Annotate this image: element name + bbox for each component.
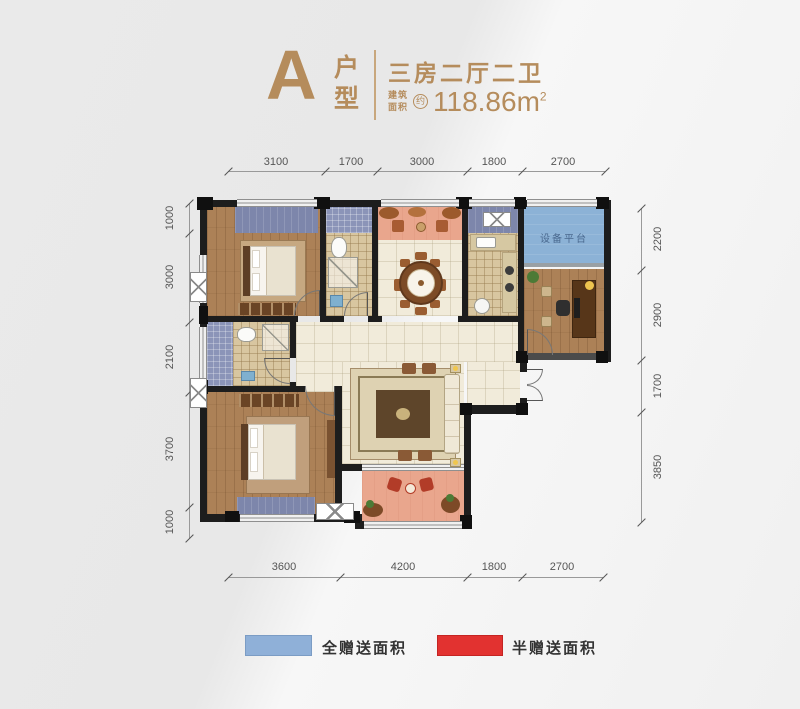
- monitor: [574, 298, 580, 318]
- bed-headboard: [243, 246, 250, 296]
- dim-line: [228, 171, 605, 172]
- bed-headboard: [241, 424, 248, 480]
- dim-label: 2700: [541, 156, 585, 168]
- lamp: [453, 366, 458, 371]
- dim-label: 1800: [472, 561, 516, 573]
- legend-swatch-half-gift: [437, 635, 503, 656]
- armchair: [422, 363, 436, 374]
- table-centerpiece: [418, 280, 424, 286]
- legend-swatch-full-gift: [245, 635, 312, 656]
- dim-line: [641, 208, 642, 522]
- wall: [206, 316, 298, 322]
- armchair: [418, 450, 432, 461]
- sink: [241, 371, 255, 381]
- balcony-chair: [436, 220, 448, 232]
- sofa: [444, 374, 460, 454]
- balcony-chair: [392, 220, 404, 232]
- guest-chair: [541, 316, 552, 327]
- window: [240, 514, 314, 522]
- plant: [366, 500, 374, 508]
- header-divider: [374, 50, 376, 120]
- wall: [518, 206, 524, 362]
- blanket: [263, 425, 295, 479]
- wall-corner-block: [460, 403, 472, 415]
- stove-burner: [505, 266, 514, 275]
- sliding-door: [362, 464, 464, 471]
- wall-corner-block: [197, 197, 213, 210]
- wall: [335, 464, 362, 471]
- entry-door-leaf: [527, 369, 543, 385]
- area-label: 建筑 面积: [388, 90, 408, 113]
- bay-window-west: [207, 322, 233, 386]
- ac-platform-icon: [190, 272, 207, 302]
- shower: [328, 257, 358, 288]
- dim-label: 2700: [540, 561, 584, 573]
- balcony-table: [416, 222, 426, 232]
- equipment-platform-label: 设备平台: [524, 230, 604, 245]
- area-superscript: 2: [540, 90, 547, 104]
- window: [381, 199, 459, 207]
- entry-door-leaf: [527, 385, 543, 401]
- layout-title: 三房二厅二卫: [388, 54, 544, 88]
- wall: [320, 206, 326, 318]
- wall: [320, 316, 344, 322]
- wall-corner-block: [514, 197, 526, 209]
- bay-window-bathroom-1: [326, 206, 372, 233]
- lamp: [585, 281, 594, 290]
- plant: [527, 271, 539, 283]
- entry-foyer: [467, 362, 520, 407]
- dim-label: 2100: [164, 335, 178, 379]
- platform-rail: [524, 263, 604, 267]
- kitchen-sink: [476, 237, 496, 248]
- toilet: [237, 327, 256, 342]
- dim-label: 1700: [652, 364, 666, 408]
- wall: [458, 316, 524, 322]
- ac-platform-icon: [483, 212, 511, 227]
- toilet: [331, 237, 347, 258]
- window: [527, 199, 597, 207]
- wall: [464, 414, 471, 529]
- dim-label: 3600: [262, 561, 306, 573]
- shower: [262, 324, 289, 351]
- floor-plan-page: A 户型 三房二厅二卫 建筑 面积 约 118.86m2 3100 1700 3…: [0, 0, 800, 709]
- plant: [446, 494, 454, 502]
- washing-machine: [474, 298, 490, 314]
- lamp: [453, 460, 458, 465]
- dim-label: 1000: [164, 196, 178, 240]
- approx-badge: 约: [413, 94, 428, 109]
- pillow: [252, 250, 260, 268]
- area-number: 118.86m: [433, 86, 540, 117]
- legend-label-half-gift: 半赠送面积: [512, 637, 597, 658]
- dim-label: 4200: [381, 561, 425, 573]
- plant: [408, 207, 426, 217]
- ac-platform-icon: [190, 378, 207, 408]
- balcony-table: [405, 483, 416, 494]
- hallway: [296, 322, 524, 362]
- wardrobe: [239, 394, 299, 407]
- pillow: [250, 428, 258, 448]
- dim-label: 1000: [164, 500, 178, 544]
- guest-chair: [541, 286, 552, 297]
- blanket: [266, 247, 295, 295]
- wall: [368, 316, 382, 322]
- dim-label: 3850: [652, 445, 666, 489]
- wall-corner-block: [596, 197, 609, 209]
- legend-label-full-gift: 全赠送面积: [322, 637, 407, 658]
- wall: [462, 206, 468, 318]
- wall: [372, 206, 378, 318]
- dim-label: 2900: [652, 293, 666, 337]
- dim-label: 2200: [652, 217, 666, 261]
- sink: [330, 295, 343, 307]
- dim-label: 3100: [254, 156, 298, 168]
- dining-chair: [415, 307, 427, 315]
- dim-label: 3700: [164, 427, 178, 471]
- window: [237, 199, 317, 207]
- area-label-line1: 建筑: [388, 90, 408, 102]
- armchair: [402, 363, 416, 374]
- dim-line: [189, 203, 190, 538]
- wall: [290, 382, 296, 392]
- pillow: [250, 452, 258, 472]
- wall: [520, 362, 527, 372]
- plant: [442, 207, 461, 219]
- wardrobe: [238, 303, 296, 315]
- wall-corner-block: [225, 511, 239, 522]
- pillow: [252, 273, 260, 291]
- ac-platform-icon: [316, 503, 354, 520]
- desk-chair: [556, 300, 570, 316]
- wall-corner-block: [516, 403, 528, 415]
- window: [364, 521, 462, 529]
- area-value: 118.86m2: [433, 88, 547, 116]
- window: [199, 327, 207, 379]
- unit-type-label: 户型: [334, 53, 359, 114]
- dim-label: 3000: [400, 156, 444, 168]
- wall: [604, 200, 611, 362]
- armchair: [398, 450, 412, 461]
- unit-type-letter: A: [266, 40, 317, 110]
- bay-window-bedroom-secondary: [235, 206, 318, 233]
- dim-label: 3000: [164, 255, 178, 299]
- plant: [379, 207, 399, 219]
- wall: [290, 322, 296, 358]
- dim-label: 1800: [472, 156, 516, 168]
- wall-corner-block: [199, 306, 208, 324]
- coffee-table: [396, 408, 410, 420]
- wall-corner-block: [596, 351, 608, 363]
- area-label-line2: 面积: [388, 102, 408, 114]
- stove-burner: [505, 283, 514, 292]
- tv-cabinet: [327, 420, 335, 478]
- wall: [335, 386, 342, 515]
- window: [469, 199, 515, 207]
- dim-label: 1700: [329, 156, 373, 168]
- dim-line: [228, 577, 603, 578]
- dining-chair: [415, 252, 427, 260]
